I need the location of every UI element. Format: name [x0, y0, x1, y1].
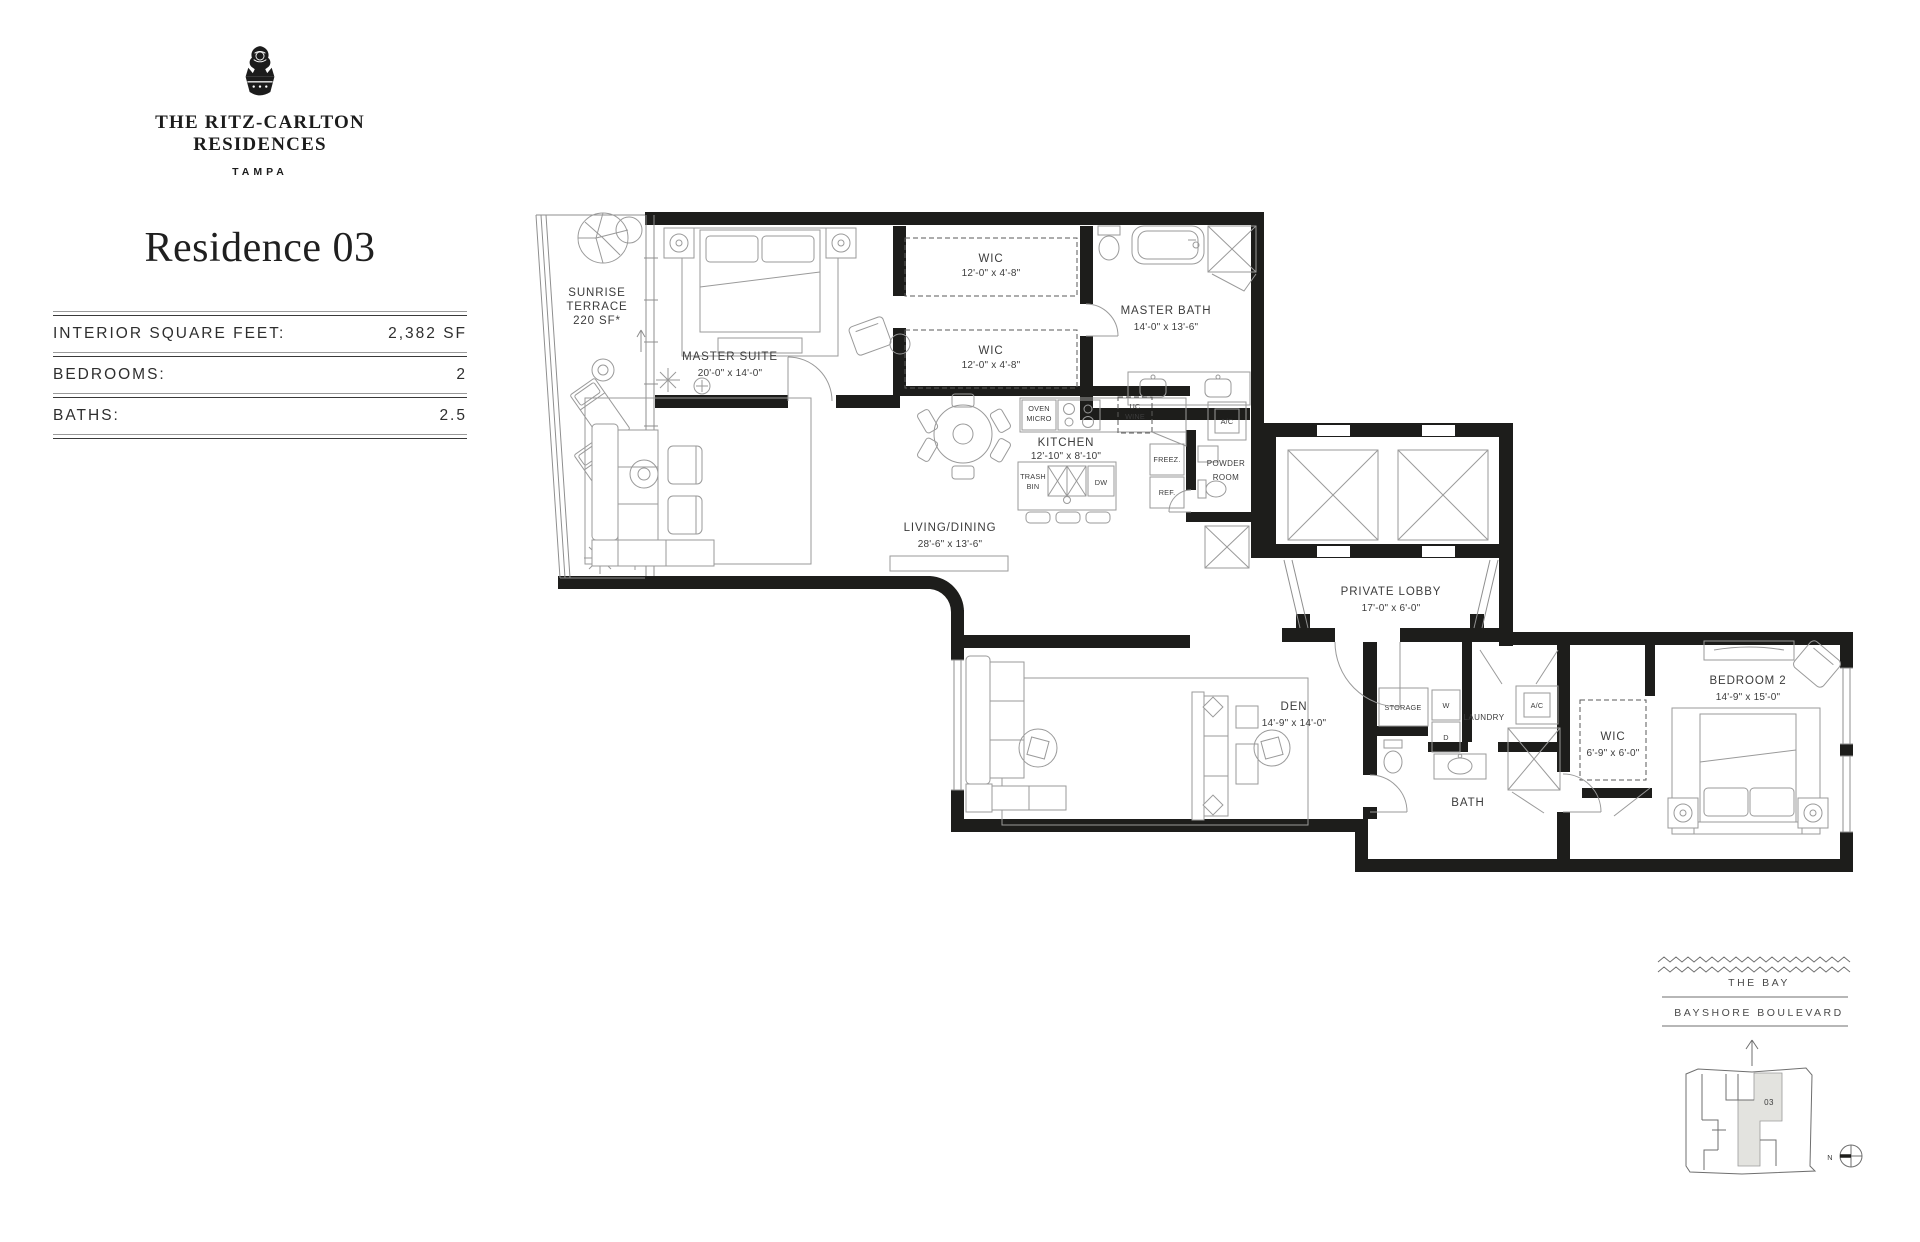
den: DEN 14'-9" x 14'-0"	[966, 656, 1326, 825]
unit-03-highlight	[1738, 1073, 1782, 1166]
toilet-icon	[1098, 226, 1120, 260]
boulevard-label: BAYSHORE BOULEVARD	[1674, 1007, 1843, 1019]
bath-label: BATH	[1451, 797, 1484, 809]
den-dims: 14'-9" x 14'-0"	[1262, 718, 1327, 729]
washer-label: W	[1442, 701, 1449, 710]
micro-label: MICRO	[1026, 414, 1051, 423]
tree-icon	[578, 213, 642, 263]
kitchen-label: KITCHEN	[1038, 437, 1095, 449]
bed	[664, 228, 856, 353]
powder-toilet	[1198, 480, 1226, 498]
master-suite-dims: 20'-0" x 14'-0"	[698, 368, 763, 379]
armchair	[848, 316, 892, 357]
master-suite-label: MASTER SUITE	[682, 351, 778, 363]
floor-lamp	[694, 378, 710, 394]
master-suite: MASTER SUITE 20'-0" x 14'-0"	[664, 228, 910, 379]
living-dining: LIVING/DINING 28'-6" x 13'-6"	[585, 368, 1012, 571]
north-compass-icon: N	[1827, 1145, 1862, 1167]
entry-closet	[1205, 526, 1249, 568]
walk-in-closets: WIC 12'-0" x 4'-8" WIC 12'-0" x 4'-8"	[905, 238, 1077, 388]
ac-upper-label: A/C	[1221, 417, 1234, 426]
wic-c-label: WIC	[1600, 731, 1625, 743]
dw-label: DW	[1095, 478, 1108, 487]
key-plan: THE BAY BAYSHORE BOULEVARD 03 N	[1658, 957, 1862, 1174]
stool	[1026, 512, 1050, 523]
floor-plan: SUNRISE TERRACE 220 SF*	[0, 0, 1920, 1242]
sofa	[592, 424, 714, 566]
stool	[1056, 512, 1080, 523]
fridge-label: REF.	[1159, 488, 1176, 497]
oven-label: OVEN	[1028, 404, 1049, 413]
water-waves-icon	[1658, 957, 1850, 972]
wic-b-dims: 12'-0" x 4'-8"	[962, 360, 1021, 371]
living-label: LIVING/DINING	[904, 522, 997, 534]
lobby-dims: 17'-0" x 6'-0"	[1362, 603, 1421, 614]
wic-c-dims: 6'-9" x 6'-0"	[1587, 748, 1640, 759]
side-table	[1236, 706, 1258, 728]
wic-a-label: WIC	[978, 253, 1003, 265]
swivel-chair	[1019, 729, 1057, 767]
nightstand	[1798, 798, 1828, 828]
elevator-core: PRIVATE LOBBY 17'-0" x 6'-0"	[1284, 450, 1498, 628]
unit-03-label: 03	[1764, 1098, 1774, 1107]
nightstand	[1668, 798, 1698, 828]
kitchen-dims: 12'-10" x 8'-10"	[1031, 451, 1102, 462]
bed	[1694, 714, 1802, 834]
console-table	[890, 556, 1008, 571]
armchair	[668, 446, 702, 484]
bedroom2-dims: 14'-9" x 15'-0"	[1716, 692, 1781, 703]
toilet-icon	[1384, 740, 1402, 773]
den-label: DEN	[1281, 701, 1308, 713]
stool	[1086, 512, 1110, 523]
terrace-label-1: SUNRISE	[568, 287, 625, 299]
den-sofa	[1192, 692, 1228, 820]
master-bath-label: MASTER BATH	[1121, 305, 1212, 317]
bathtub-icon	[1132, 226, 1204, 264]
trash-label-2: BIN	[1027, 482, 1040, 491]
terrace-area-label: 220 SF*	[573, 315, 621, 327]
powder-room: A/C POWDER ROOM	[1198, 402, 1249, 568]
wic-b-label: WIC	[978, 345, 1003, 357]
freezer-label: FREEZ.	[1153, 455, 1180, 464]
ac-lower-label: A/C	[1531, 701, 1544, 710]
living-dims: 28'-6" x 13'-6"	[918, 539, 983, 550]
bedroom2-label: BEDROOM 2	[1709, 675, 1786, 687]
armchair	[668, 496, 702, 534]
lobby-label: PRIVATE LOBBY	[1341, 586, 1442, 598]
dining-table	[916, 394, 1011, 479]
powder-label-1: POWDER	[1207, 459, 1245, 468]
shower-icon	[1208, 226, 1256, 291]
wic-a-dims: 12'-0" x 4'-8"	[962, 268, 1021, 279]
direction-arrow	[1746, 1040, 1758, 1066]
bay-label: THE BAY	[1728, 977, 1790, 989]
shower-icon	[1508, 728, 1560, 813]
floorplan-sheet: THE RITZ-CARLTON RESIDENCES TAMPA Reside…	[0, 0, 1920, 1242]
master-bath-dims: 14'-0" x 13'-6"	[1134, 322, 1199, 333]
uc-label: UC	[1130, 402, 1141, 411]
round-chair	[1254, 730, 1290, 766]
elevator-shaft	[1398, 450, 1488, 540]
armchair	[1792, 639, 1843, 689]
elevator-shaft	[1288, 450, 1378, 540]
storage-label: STORAGE	[1385, 703, 1422, 712]
bedroom-2: BEDROOM 2 14'-9" x 15'-0"	[1668, 639, 1842, 834]
wine-label: WINE	[1125, 412, 1145, 421]
north-label: N	[1827, 1153, 1832, 1162]
wic-bedroom2: WIC 6'-9" x 6'-0"	[1580, 700, 1646, 780]
coffee-table	[1236, 744, 1258, 784]
trash-label-1: TRASH	[1020, 472, 1046, 481]
dryer-label: D	[1443, 733, 1448, 742]
vanity-sink	[1434, 754, 1486, 779]
laundry-label: LAUNDRY	[1464, 713, 1505, 722]
terrace-label-2: TERRACE	[566, 301, 627, 313]
powder-label-2: ROOM	[1213, 473, 1240, 482]
master-bath: MASTER BATH 14'-0" x 13'-6"	[1098, 226, 1256, 405]
plant-icon	[656, 368, 680, 392]
terrace-table	[592, 359, 614, 381]
island-sink	[1048, 466, 1086, 504]
kitchen-island: TRASH BIN DW	[1018, 462, 1116, 523]
